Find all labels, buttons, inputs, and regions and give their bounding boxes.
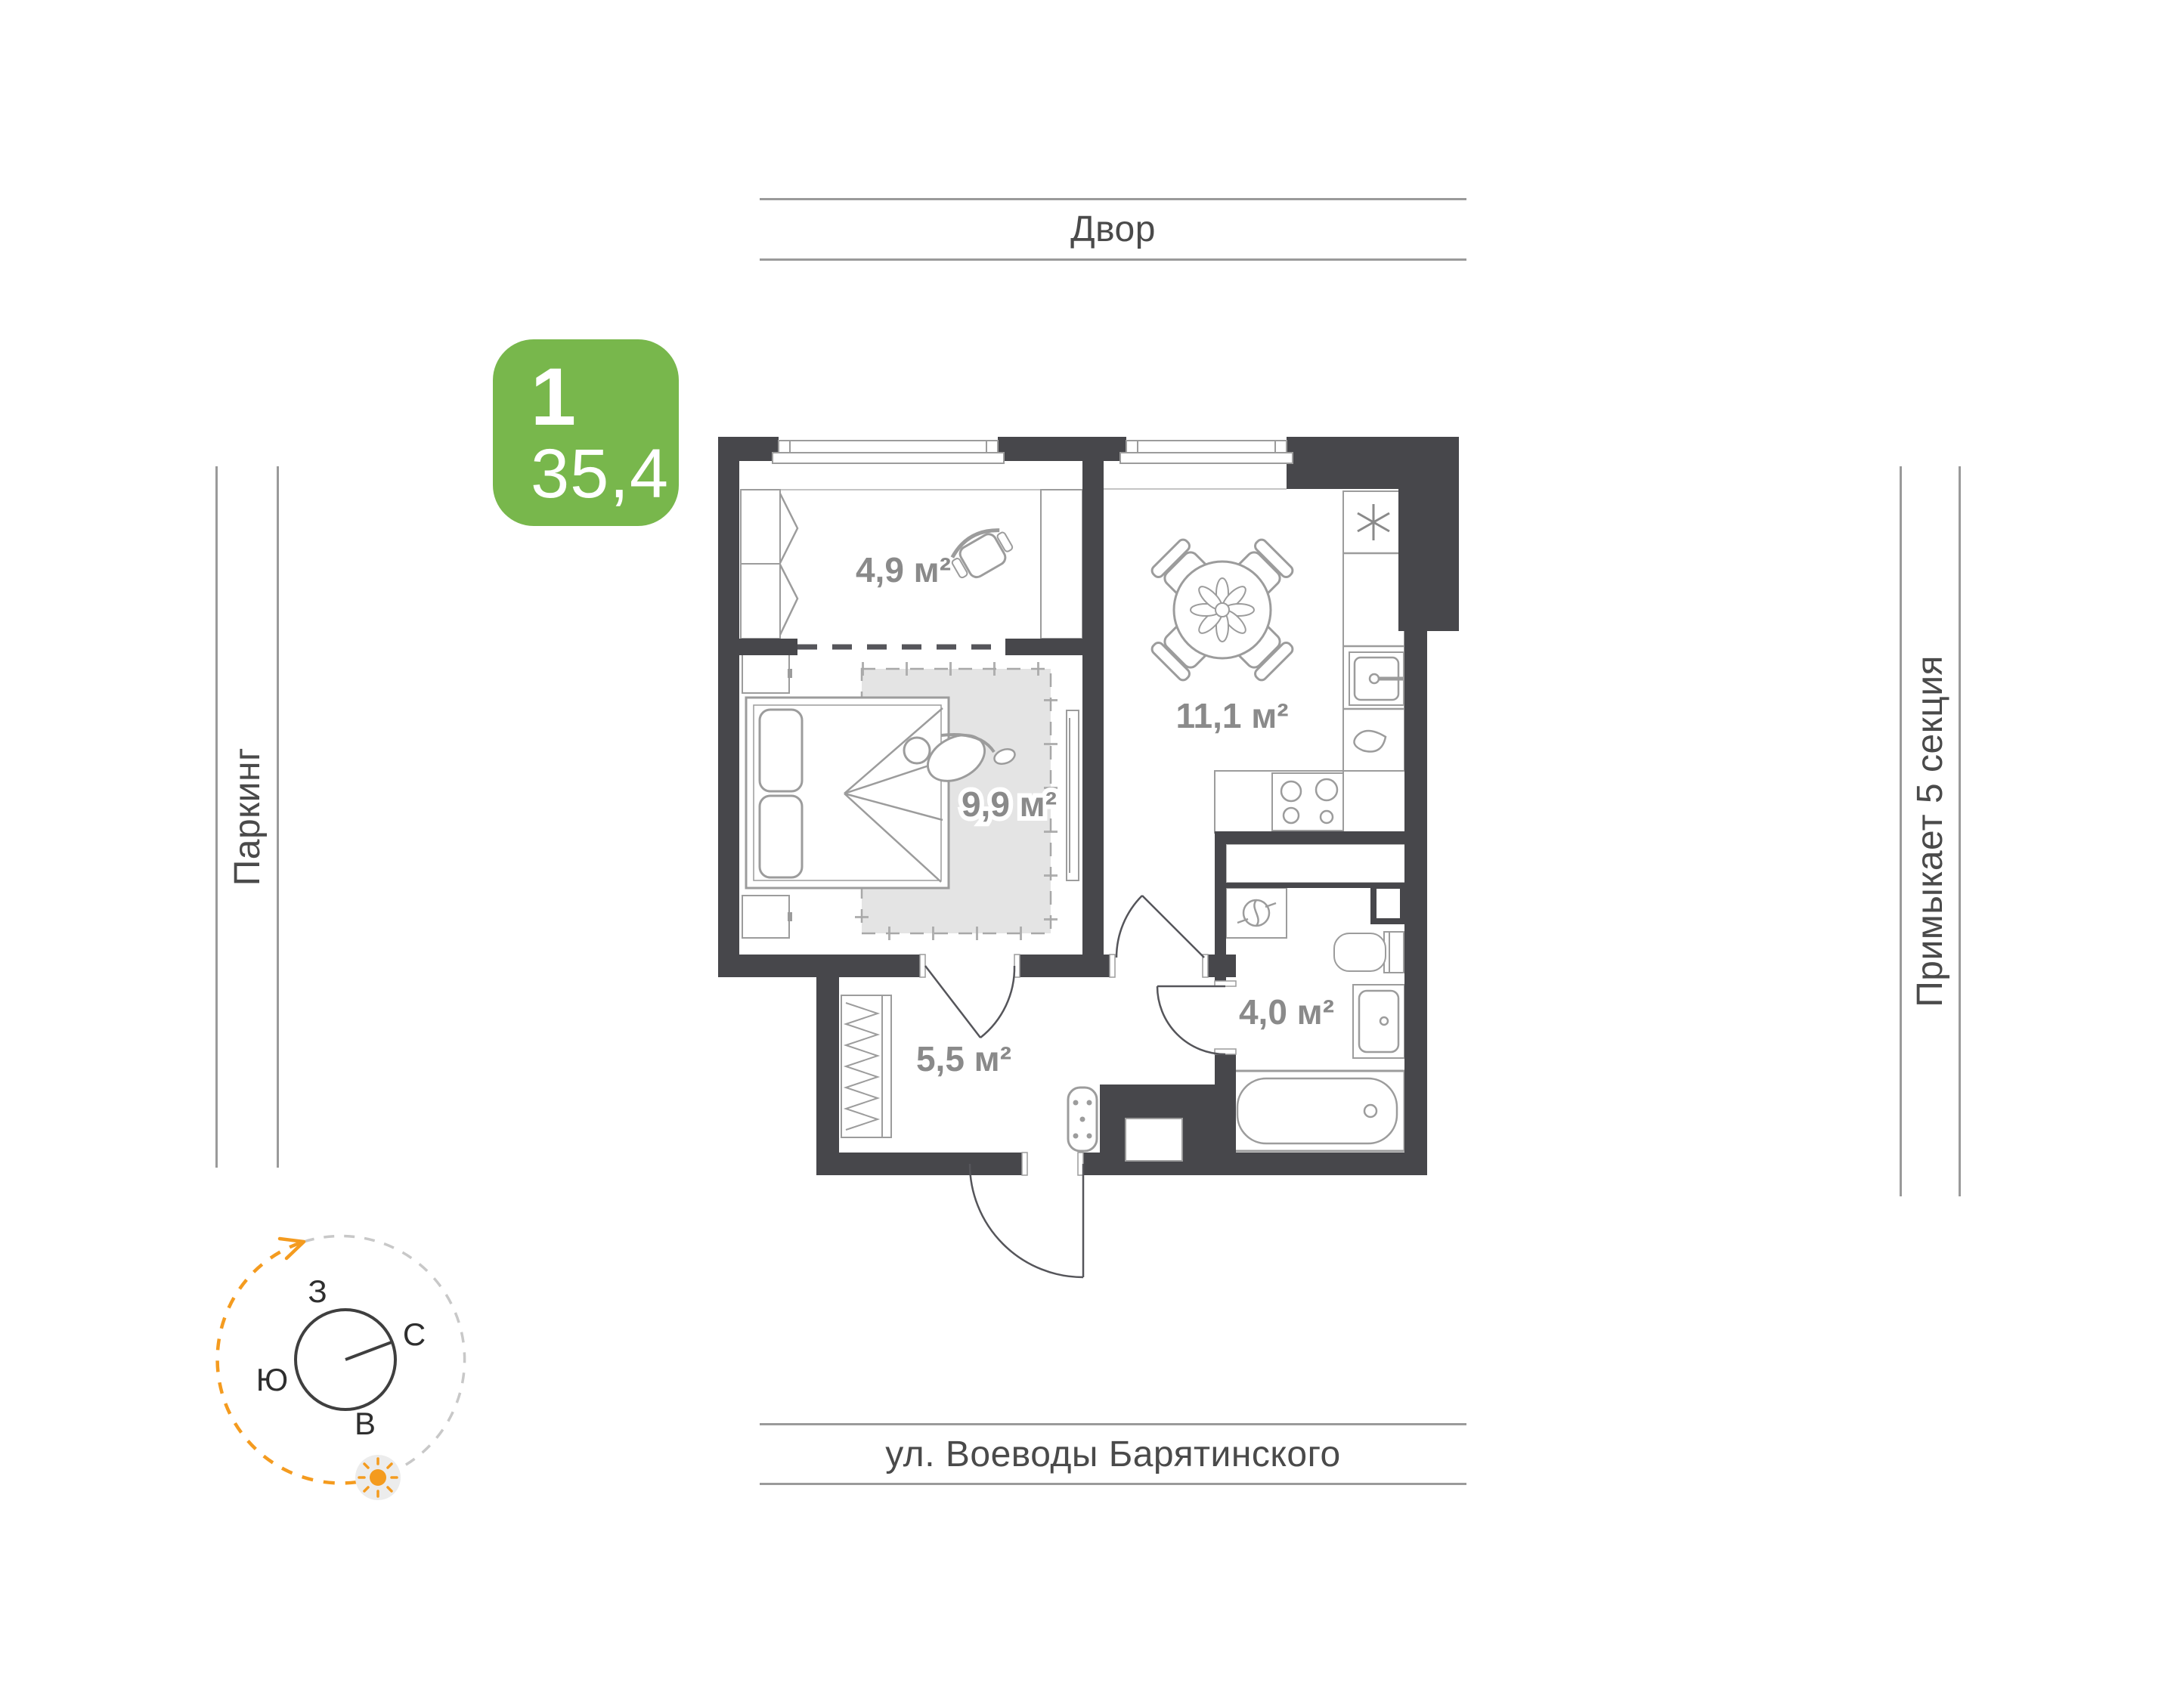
bathtub-icon	[1230, 1071, 1404, 1151]
apartment-rooms-count: 1	[531, 358, 679, 436]
tv-console-icon	[1067, 710, 1079, 880]
context-label-courtyard-text: Двор	[1070, 209, 1156, 250]
kitchen-window-icon	[1120, 441, 1293, 463]
room-area-kitchen: 11,1 м²	[1175, 696, 1288, 735]
sun-path-arrow-icon	[280, 1239, 304, 1258]
window-sill-lines	[780, 489, 1287, 490]
context-label-parking: Паркинг	[215, 466, 279, 1168]
room-area-bathroom: 4,0 м²	[1239, 992, 1334, 1032]
bathroom-door-arc	[1157, 986, 1225, 1054]
compass-direction-east: В	[355, 1406, 376, 1441]
apartment-badge: 1 35,4	[493, 339, 679, 526]
context-label-parking-text: Паркинг	[227, 747, 268, 886]
wardrobe-icon	[741, 490, 797, 639]
kitchen-lobby-door-arc	[1116, 896, 1204, 958]
flower-centerpiece-icon	[1191, 578, 1254, 642]
compass-direction-west: З	[308, 1273, 327, 1309]
entry-niche	[1126, 1119, 1182, 1161]
context-label-street: ул. Воеводы Барятинского	[760, 1423, 1466, 1485]
compass: З С Ю В	[197, 1209, 499, 1527]
vent-shaft	[1376, 889, 1400, 918]
compass-direction-south: Ю	[256, 1362, 288, 1397]
room-area-loggia: 4,9 м²	[856, 550, 951, 589]
context-label-courtyard: Двор	[760, 198, 1466, 261]
desk-icon	[1041, 490, 1082, 639]
context-label-adjacent-section-text: Примыкает 5 секция	[1909, 655, 1951, 1007]
floorplan-page: Двор ул. Воеводы Барятинского Паркинг Пр…	[0, 0, 2177, 1708]
apartment-total-area: 35,4	[531, 441, 679, 507]
room-area-bedroom: 9,9 м²	[962, 784, 1057, 824]
sun-icon	[355, 1455, 401, 1500]
washing-machine-icon	[1226, 888, 1287, 938]
stove-icon	[1272, 773, 1343, 831]
bedroom-door-arc	[925, 966, 1014, 1038]
kitchen-cabinets	[1215, 491, 1404, 833]
washbasin-icon	[1353, 985, 1404, 1058]
floor-plan: 4,9 м² 9,9 м² 11,1 м² 5,5 м² 4,0 м²	[714, 419, 1463, 1296]
context-label-street-text: ул. Воеводы Барятинского	[885, 1434, 1341, 1475]
dining-table-icon	[1150, 537, 1295, 682]
loggia-window-icon	[773, 441, 1004, 463]
duct-niche	[1226, 844, 1406, 883]
kitchen-sink-icon	[1349, 652, 1404, 705]
compass-direction-north: С	[403, 1317, 426, 1352]
kettle-icon	[1354, 731, 1386, 752]
ottoman-icon	[1068, 1088, 1097, 1151]
context-label-adjacent-section: Примыкает 5 секция	[1900, 466, 1961, 1196]
bed-icon	[746, 698, 949, 888]
room-area-hallway: 5,5 м²	[916, 1039, 1011, 1078]
office-chair-icon	[946, 521, 1017, 585]
hall-wardrobe-icon	[841, 995, 891, 1137]
entrance-door-arc	[970, 1164, 1083, 1277]
toilet-icon	[1334, 932, 1404, 973]
